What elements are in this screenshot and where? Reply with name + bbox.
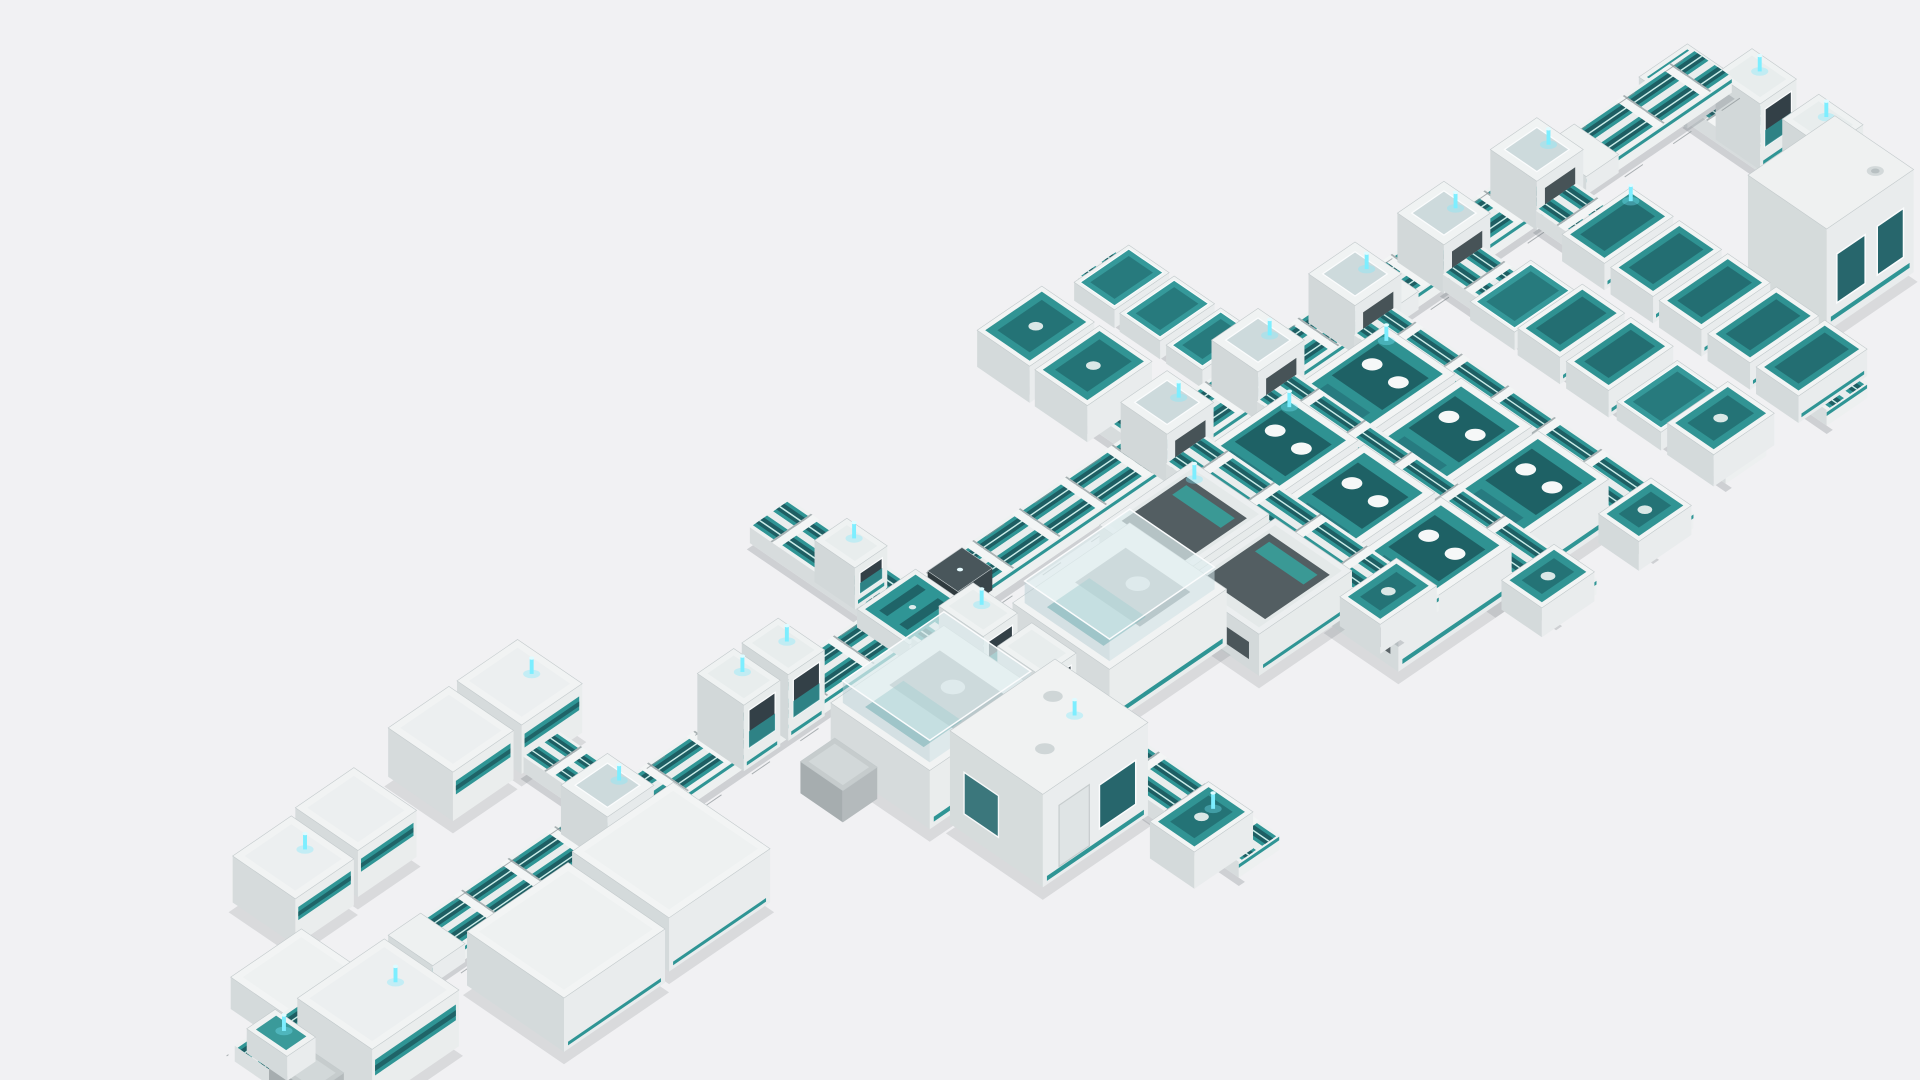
automation-3d-viewport[interactable]	[0, 0, 1920, 1080]
lab-automation-scene	[0, 0, 1920, 1080]
